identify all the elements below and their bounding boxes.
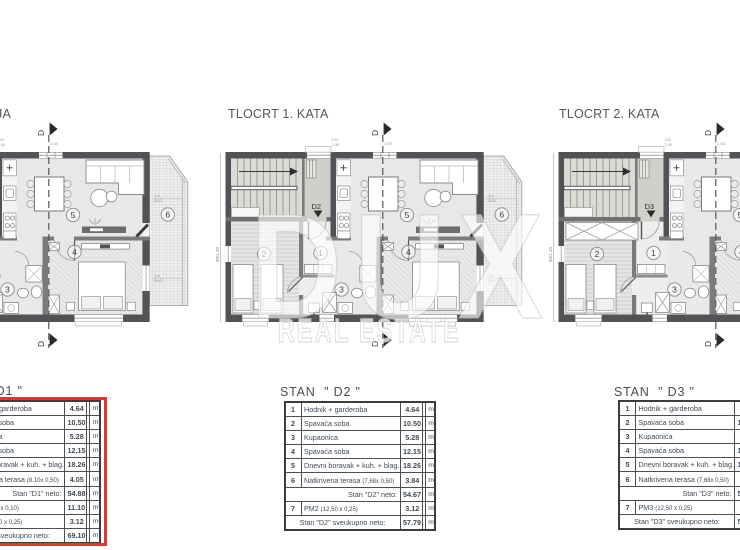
svg-text:D3: D3 bbox=[645, 202, 655, 211]
